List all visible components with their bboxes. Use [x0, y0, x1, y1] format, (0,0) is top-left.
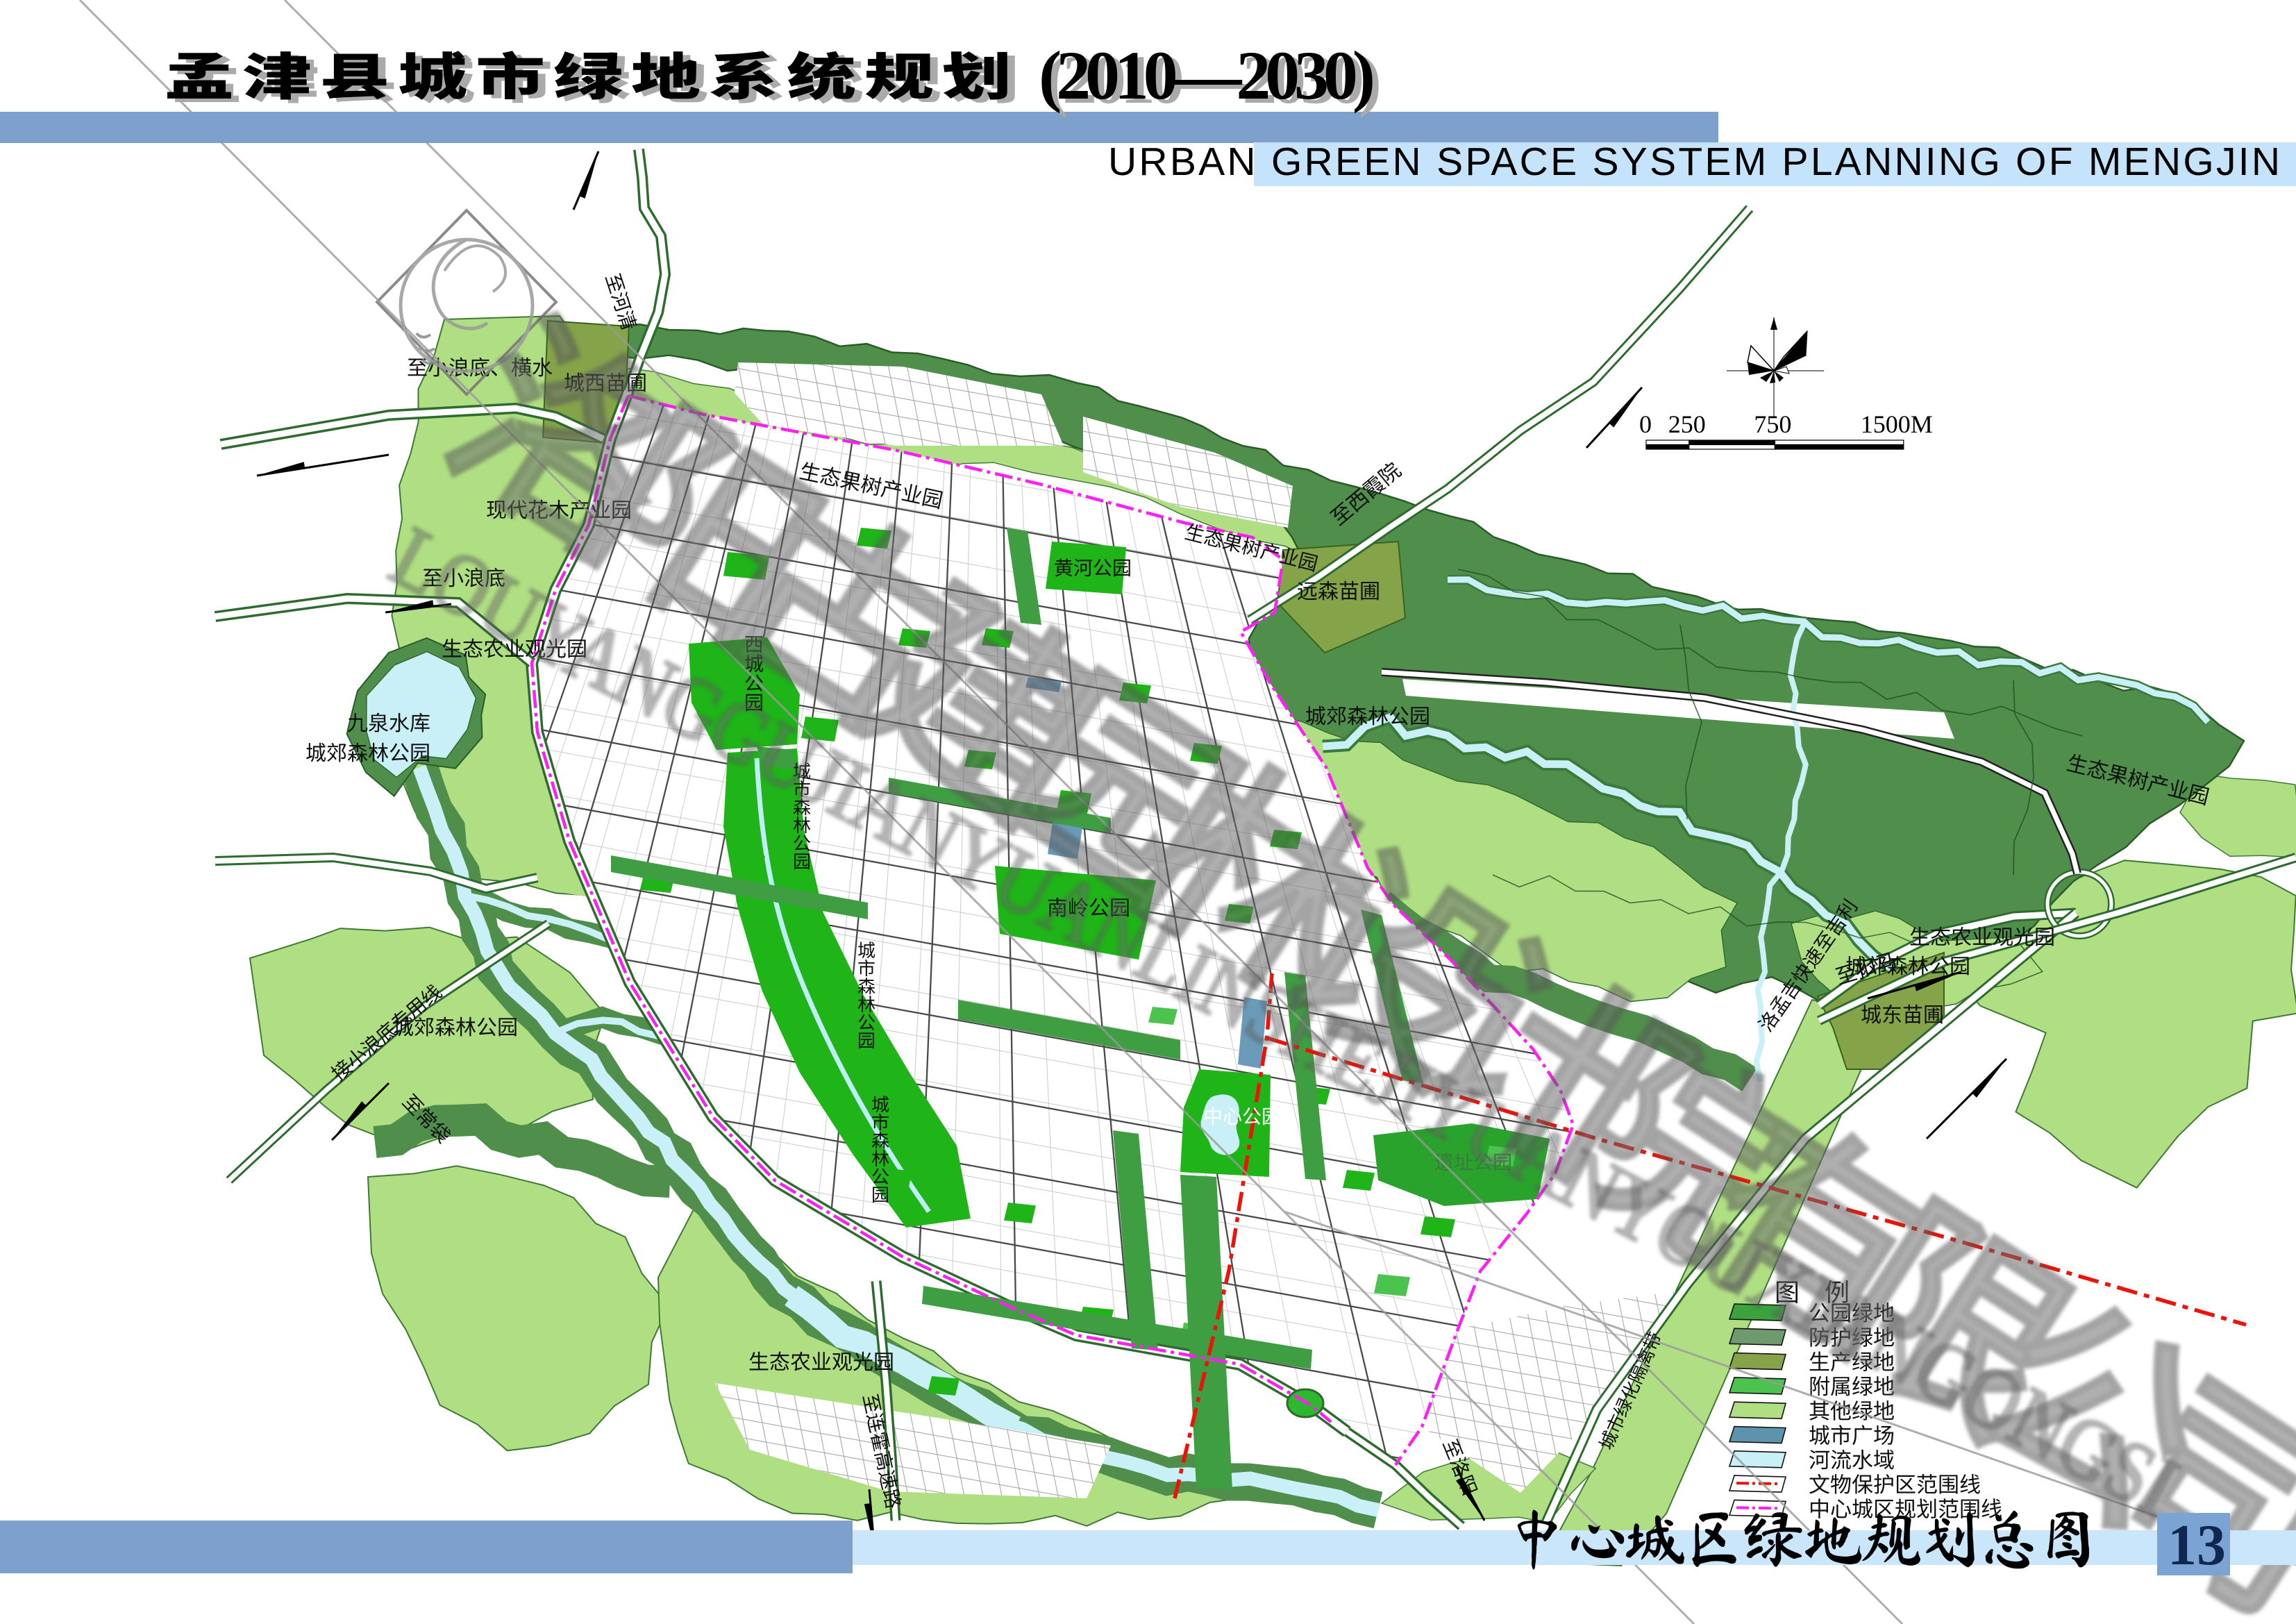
svg-text:250: 250: [1668, 410, 1706, 438]
svg-text:(2010—2030): (2010—2030): [1039, 37, 1375, 114]
svg-text:URBAN GREEN SPACE SYSTEM PLANN: URBAN GREEN SPACE SYSTEM PLANNING OF MEN…: [1108, 140, 2280, 184]
svg-text:1500M: 1500M: [1861, 410, 1933, 438]
svg-text:0: 0: [1639, 410, 1652, 438]
svg-text:13: 13: [2168, 1513, 2226, 1577]
svg-text:750: 750: [1754, 410, 1791, 438]
